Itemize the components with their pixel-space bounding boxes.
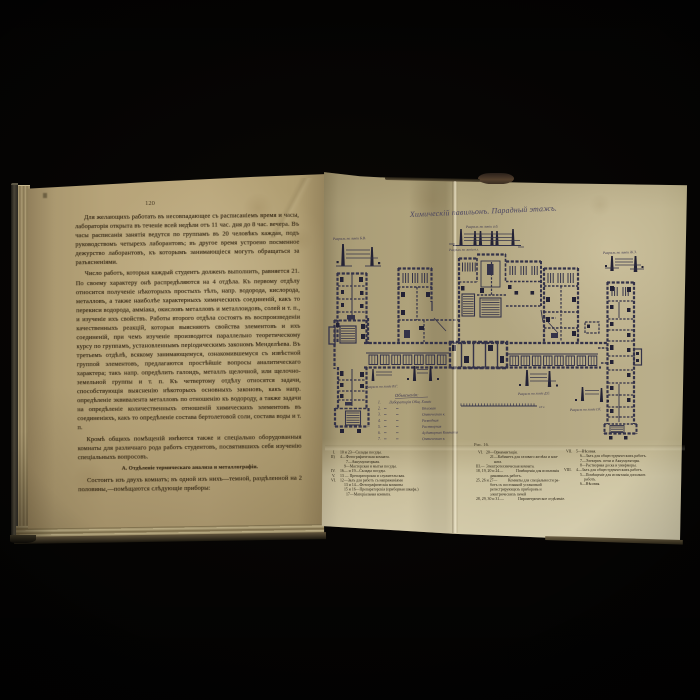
svg-text:Разрѣзъ по линiи I.К.: Разрѣзъ по линiи I.К. [569, 407, 602, 412]
svg-text:13 — Препараторская и служител: 13 — Препараторская и служительская. [340, 474, 405, 478]
svg-text:Электротехническая комната.: Электротехническая комната. [486, 464, 535, 468]
svg-text:4—Залъ для общестуденческихъ р: 4—Залъ для общестуденческихъ работъ. [576, 468, 642, 472]
svg-text:13 и 14—Фотографическiя комнат: 13 и 14—Фотографическiя комнаты [344, 483, 403, 487]
svg-text:электрическихъ печей: электрическихъ печей [490, 492, 526, 496]
svg-text:Лабораторiя Общ. Химiи: Лабораторiя Общ. Химiи [388, 400, 431, 405]
svg-text:16— и 19—Склады посуды.: 16— и 19—Склады посуды. [340, 469, 386, 473]
svg-text:I.: I. [333, 451, 335, 455]
svg-text:4.: 4. [378, 419, 381, 423]
svg-text:20—Орнаментацiя.: 20—Орнаментацiя. [486, 451, 518, 455]
svg-text:Оптическая в.: Оптическая в. [422, 437, 445, 441]
svg-text:Разрѣзъ по линiи В.Г.: Разрѣзъ по линiи В.Г. [365, 384, 398, 389]
svg-text:10 с.: 10 с. [539, 405, 545, 409]
svg-text:2.: 2. [378, 407, 381, 411]
svg-text:Разрѣзъ по линiи Ж.З.: Разрѣзъ по линiи Ж.З. [602, 250, 637, 255]
svg-text:15 и 16—Препараторскiя (прибор: 15 и 16—Препараторскiя (приборная шкафа.… [344, 488, 419, 492]
svg-text:VIII.: VIII. [564, 468, 572, 472]
svg-text:6.: 6. [378, 431, 381, 435]
svg-text:3.: 3. [378, 413, 381, 417]
svg-text:5—Помѣщенiе для испытанiя допо: 5—Помѣщенiе для испытанiя дополнит. [580, 473, 646, 477]
svg-text:4—Фотографическая комната.: 4—Фотографическая комната. [340, 455, 390, 459]
svg-text:12—Залъ для работъ съ напряжен: 12—Залъ для работъ съ напряженiями [340, 478, 403, 482]
svg-text:Пирометрическое отдѣленiе.: Пирометрическое отдѣленiе. [518, 497, 565, 501]
svg-text:Комнаты для спецiальности ра-: Комнаты для спецiальности ра- [508, 478, 560, 482]
svg-text:Разрѣзъ по линiи Д.Е.: Разрѣзъ по линiи Д.Е. [517, 391, 551, 396]
svg-text:9—Мастерская и мытья посуды.: 9—Мастерская и мытья посуды. [344, 464, 397, 468]
svg-text:V.: V. [332, 474, 335, 478]
svg-text:регистрирующихъ приборовъ и: регистрирующихъ приборовъ и [490, 488, 542, 492]
svg-text:VII.: VII. [566, 450, 572, 454]
svg-text:Разрѣзъ по линiи Б.В.: Разрѣзъ по линiи Б.В. [332, 236, 366, 241]
svg-text:7—Аккумуляторная.: 7—Аккумуляторная. [346, 460, 380, 464]
svg-text:5.: 5. [378, 425, 381, 429]
svg-text:7.: 7. [378, 437, 381, 441]
svg-text:ботъ съ постоянной установкой: ботъ съ постоянной установкой [490, 483, 542, 487]
svg-text:работъ.: работъ. [584, 477, 596, 481]
svg-text:8—Растворная доска и унифморы: 8—Растворная доска и унифморы. [580, 463, 637, 467]
svg-text:6—Вѣсовая.: 6—Вѣсовая. [580, 482, 600, 486]
svg-text:21—Кабинетъ для газоваго желѣз: 21—Кабинетъ для газоваго желѣза и ком- [490, 455, 559, 459]
svg-text:динамныхъ работъ.: динамныхъ работъ. [490, 474, 522, 478]
svg-text:III.—: III.— [476, 464, 485, 468]
svg-text:Химическiй павильонъ. Парадн: Химическiй павильонъ. Парадный этажъ. [409, 204, 557, 219]
svg-text:VI.: VI. [478, 451, 483, 455]
svg-text:28, 29, 30 и 31.—: 28, 29, 30 и 31.— [476, 497, 504, 502]
svg-text:II): II) [331, 455, 336, 459]
svg-text:5—Вѣсовая.: 5—Вѣсовая. [576, 450, 596, 454]
svg-text:Помѣщенiя для испытанiя: Помѣщенiя для испытанiя [516, 469, 559, 473]
svg-text:Объясненiя:: Объясненiя: [395, 392, 419, 398]
svg-text:1.: 1. [378, 401, 381, 405]
svg-text:IV.: IV. [331, 469, 336, 473]
svg-text:Оптическая к.: Оптическая к. [422, 412, 446, 416]
svg-text:Рис. 16.: Рис. 16. [474, 442, 489, 447]
svg-text:7—Электрич. печи и Аккумулятор: 7—Электрич. печи и Аккумуляторы. [580, 459, 640, 463]
svg-text:ната.: ната. [494, 460, 502, 464]
svg-text:Вѣсовая: Вѣсовая [422, 406, 436, 410]
svg-text:6—Залъ для общестуденческихъ р: 6—Залъ для общестуденческихъ работъ. [580, 454, 646, 458]
svg-text:Аудиторная Комната: Аудиторная Комната [421, 430, 458, 435]
svg-text:Разрѣзъ по линiи а.б.: Разрѣзъ по линiи а.б. [465, 224, 498, 229]
svg-text:10 и 23—Склады посуды.: 10 и 23—Склады посуды. [340, 451, 382, 455]
svg-text:Растворная: Растворная [421, 425, 442, 429]
svg-text:VI.: VI. [331, 478, 336, 482]
svg-text:17—Матерiальная комната.: 17—Матерiальная комната. [346, 492, 391, 496]
svg-text:Разводная: Разводная [421, 419, 439, 423]
